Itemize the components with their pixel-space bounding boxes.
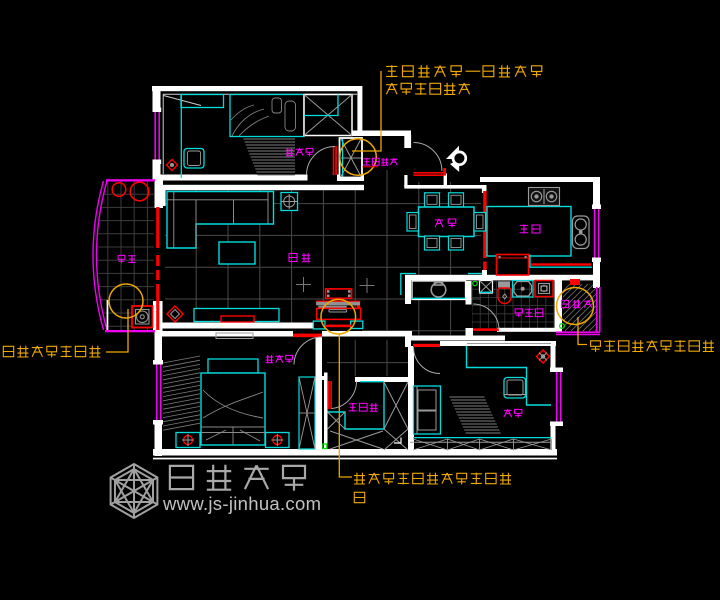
svg-text:www.js-jinhua.com: www.js-jinhua.com [162,493,321,514]
